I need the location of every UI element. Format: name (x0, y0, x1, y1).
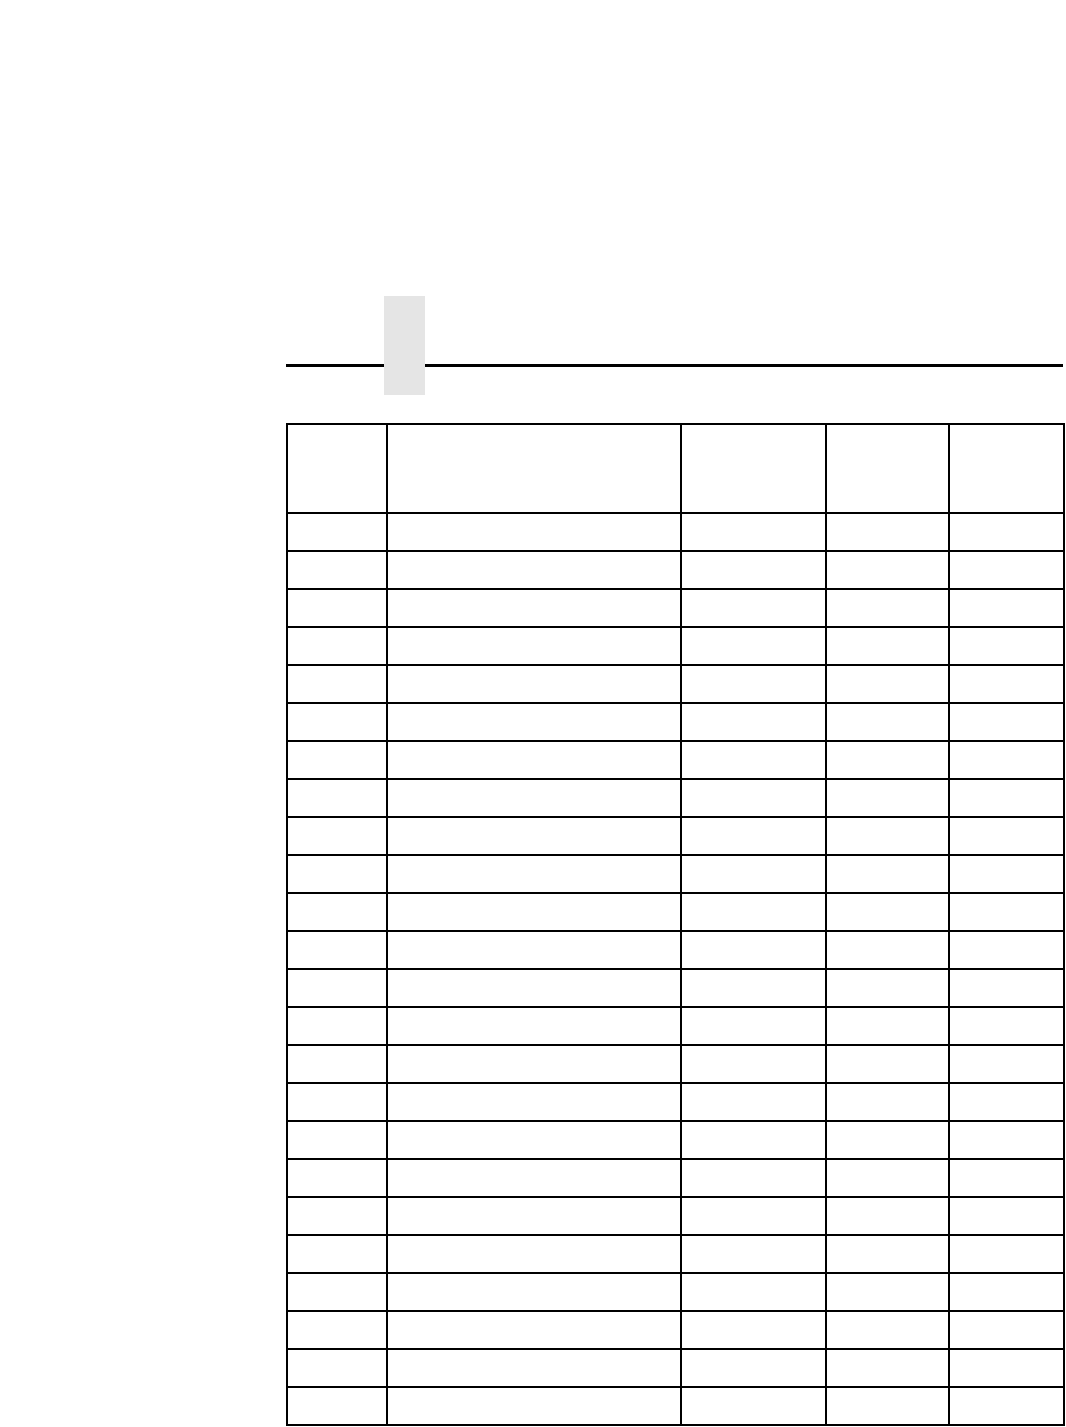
table-row (287, 1387, 1064, 1425)
table-cell (681, 931, 826, 969)
table-cell (949, 589, 1064, 627)
table-cell (387, 627, 681, 665)
table-cell (681, 665, 826, 703)
table-cell (287, 703, 387, 741)
table-cell (826, 1083, 949, 1121)
table-cell (681, 589, 826, 627)
table-cell (287, 1083, 387, 1121)
table-cell (681, 1349, 826, 1387)
table-cell (387, 1349, 681, 1387)
table-row (287, 855, 1064, 893)
table-cell (949, 665, 1064, 703)
table-cell (387, 817, 681, 855)
table-cell (387, 969, 681, 1007)
table-cell (949, 1197, 1064, 1235)
table-cell (387, 931, 681, 969)
table-cell (387, 665, 681, 703)
table-cell (387, 1273, 681, 1311)
table-body (287, 513, 1064, 1425)
table-cell (287, 855, 387, 893)
table-cell (387, 741, 681, 779)
table-cell (681, 1159, 826, 1197)
table-cell (287, 513, 387, 551)
table-cell (287, 627, 387, 665)
table-cell (949, 1387, 1064, 1425)
table-cell (949, 817, 1064, 855)
table-cell (681, 1387, 826, 1425)
table-cell (826, 513, 949, 551)
table-cell (826, 931, 949, 969)
table-cell (287, 1045, 387, 1083)
table-cell (287, 1387, 387, 1425)
table-cell (826, 1273, 949, 1311)
table-row (287, 665, 1064, 703)
table-cell (287, 1197, 387, 1235)
table-cell (681, 1311, 826, 1349)
table-cell (387, 1235, 681, 1273)
table-cell (826, 1007, 949, 1045)
table-cell (949, 931, 1064, 969)
table-cell (287, 1121, 387, 1159)
table-row (287, 1083, 1064, 1121)
table-row (287, 1197, 1064, 1235)
table-cell (826, 551, 949, 589)
table-cell (949, 1083, 1064, 1121)
table-cell (949, 779, 1064, 817)
table-cell (681, 551, 826, 589)
header-cell (287, 424, 387, 513)
table-cell (387, 1083, 681, 1121)
table-row (287, 893, 1064, 931)
document-page (0, 0, 1066, 1427)
table-row (287, 1159, 1064, 1197)
table-cell (287, 1159, 387, 1197)
table-cell (681, 855, 826, 893)
table-cell (287, 931, 387, 969)
table-cell (287, 817, 387, 855)
table-cell (949, 1045, 1064, 1083)
table-cell (949, 627, 1064, 665)
table-cell (387, 1311, 681, 1349)
table-cell (387, 1007, 681, 1045)
table-cell (287, 969, 387, 1007)
table-cell (681, 969, 826, 1007)
table-cell (826, 1387, 949, 1425)
table-cell (826, 969, 949, 1007)
header-cell (826, 424, 949, 513)
table-row (287, 969, 1064, 1007)
table-cell (681, 513, 826, 551)
table-row (287, 1273, 1064, 1311)
table-cell (287, 589, 387, 627)
table-row (287, 931, 1064, 969)
table-cell (387, 855, 681, 893)
table-cell (387, 513, 681, 551)
table-cell (949, 703, 1064, 741)
table-cell (681, 1121, 826, 1159)
table-header-row (287, 424, 1064, 513)
table-cell (826, 741, 949, 779)
table-cell (681, 1045, 826, 1083)
table-cell (387, 703, 681, 741)
table-cell (826, 665, 949, 703)
table-cell (387, 1159, 681, 1197)
table-cell (387, 589, 681, 627)
table-cell (826, 779, 949, 817)
table-cell (949, 969, 1064, 1007)
table-cell (681, 817, 826, 855)
table-row (287, 1349, 1064, 1387)
table-cell (681, 741, 826, 779)
table-container (286, 423, 1065, 1426)
table-row (287, 1007, 1064, 1045)
table-cell (826, 703, 949, 741)
table-cell (287, 741, 387, 779)
table-cell (287, 665, 387, 703)
table-cell (949, 1311, 1064, 1349)
header-cell (681, 424, 826, 513)
table-cell (826, 627, 949, 665)
table-cell (287, 1007, 387, 1045)
table-cell (949, 1235, 1064, 1273)
table-cell (826, 1159, 949, 1197)
table-cell (287, 779, 387, 817)
table-cell (949, 855, 1064, 893)
table-cell (681, 627, 826, 665)
table-row (287, 703, 1064, 741)
table-cell (681, 1007, 826, 1045)
table-cell (287, 1311, 387, 1349)
table-cell (387, 779, 681, 817)
table-cell (681, 703, 826, 741)
table-cell (949, 1273, 1064, 1311)
table-cell (387, 893, 681, 931)
table-row (287, 551, 1064, 589)
table-row (287, 627, 1064, 665)
table-cell (826, 1349, 949, 1387)
table-header (287, 424, 1064, 513)
table-cell (287, 893, 387, 931)
table-cell (949, 893, 1064, 931)
table-row (287, 817, 1064, 855)
header-cell (949, 424, 1064, 513)
table-row (287, 1235, 1064, 1273)
table-cell (826, 855, 949, 893)
table-row (287, 589, 1064, 627)
table-cell (826, 893, 949, 931)
table-cell (287, 1235, 387, 1273)
table-cell (681, 1083, 826, 1121)
table-cell (287, 1273, 387, 1311)
table-row (287, 1121, 1064, 1159)
table-cell (287, 1349, 387, 1387)
table-row (287, 1311, 1064, 1349)
table-cell (949, 513, 1064, 551)
table-cell (826, 1311, 949, 1349)
table-cell (949, 1349, 1064, 1387)
table-cell (826, 1045, 949, 1083)
table-row (287, 741, 1064, 779)
table-cell (387, 551, 681, 589)
table-cell (949, 1007, 1064, 1045)
table-cell (949, 741, 1064, 779)
chapter-tab-marker (384, 296, 425, 395)
table-row (287, 513, 1064, 551)
table-cell (949, 551, 1064, 589)
table-cell (826, 817, 949, 855)
table-cell (681, 1235, 826, 1273)
table-cell (681, 779, 826, 817)
table-cell (681, 893, 826, 931)
table-row (287, 779, 1064, 817)
table-cell (387, 1197, 681, 1235)
table-cell (826, 589, 949, 627)
table-cell (681, 1197, 826, 1235)
table-cell (387, 1045, 681, 1083)
empty-parts-table (286, 423, 1065, 1426)
table-cell (287, 551, 387, 589)
table-cell (387, 1121, 681, 1159)
header-cell (387, 424, 681, 513)
table-cell (826, 1121, 949, 1159)
table-row (287, 1045, 1064, 1083)
table-cell (681, 1273, 826, 1311)
table-cell (949, 1121, 1064, 1159)
table-cell (826, 1235, 949, 1273)
table-cell (826, 1197, 949, 1235)
table-cell (387, 1387, 681, 1425)
table-cell (949, 1159, 1064, 1197)
